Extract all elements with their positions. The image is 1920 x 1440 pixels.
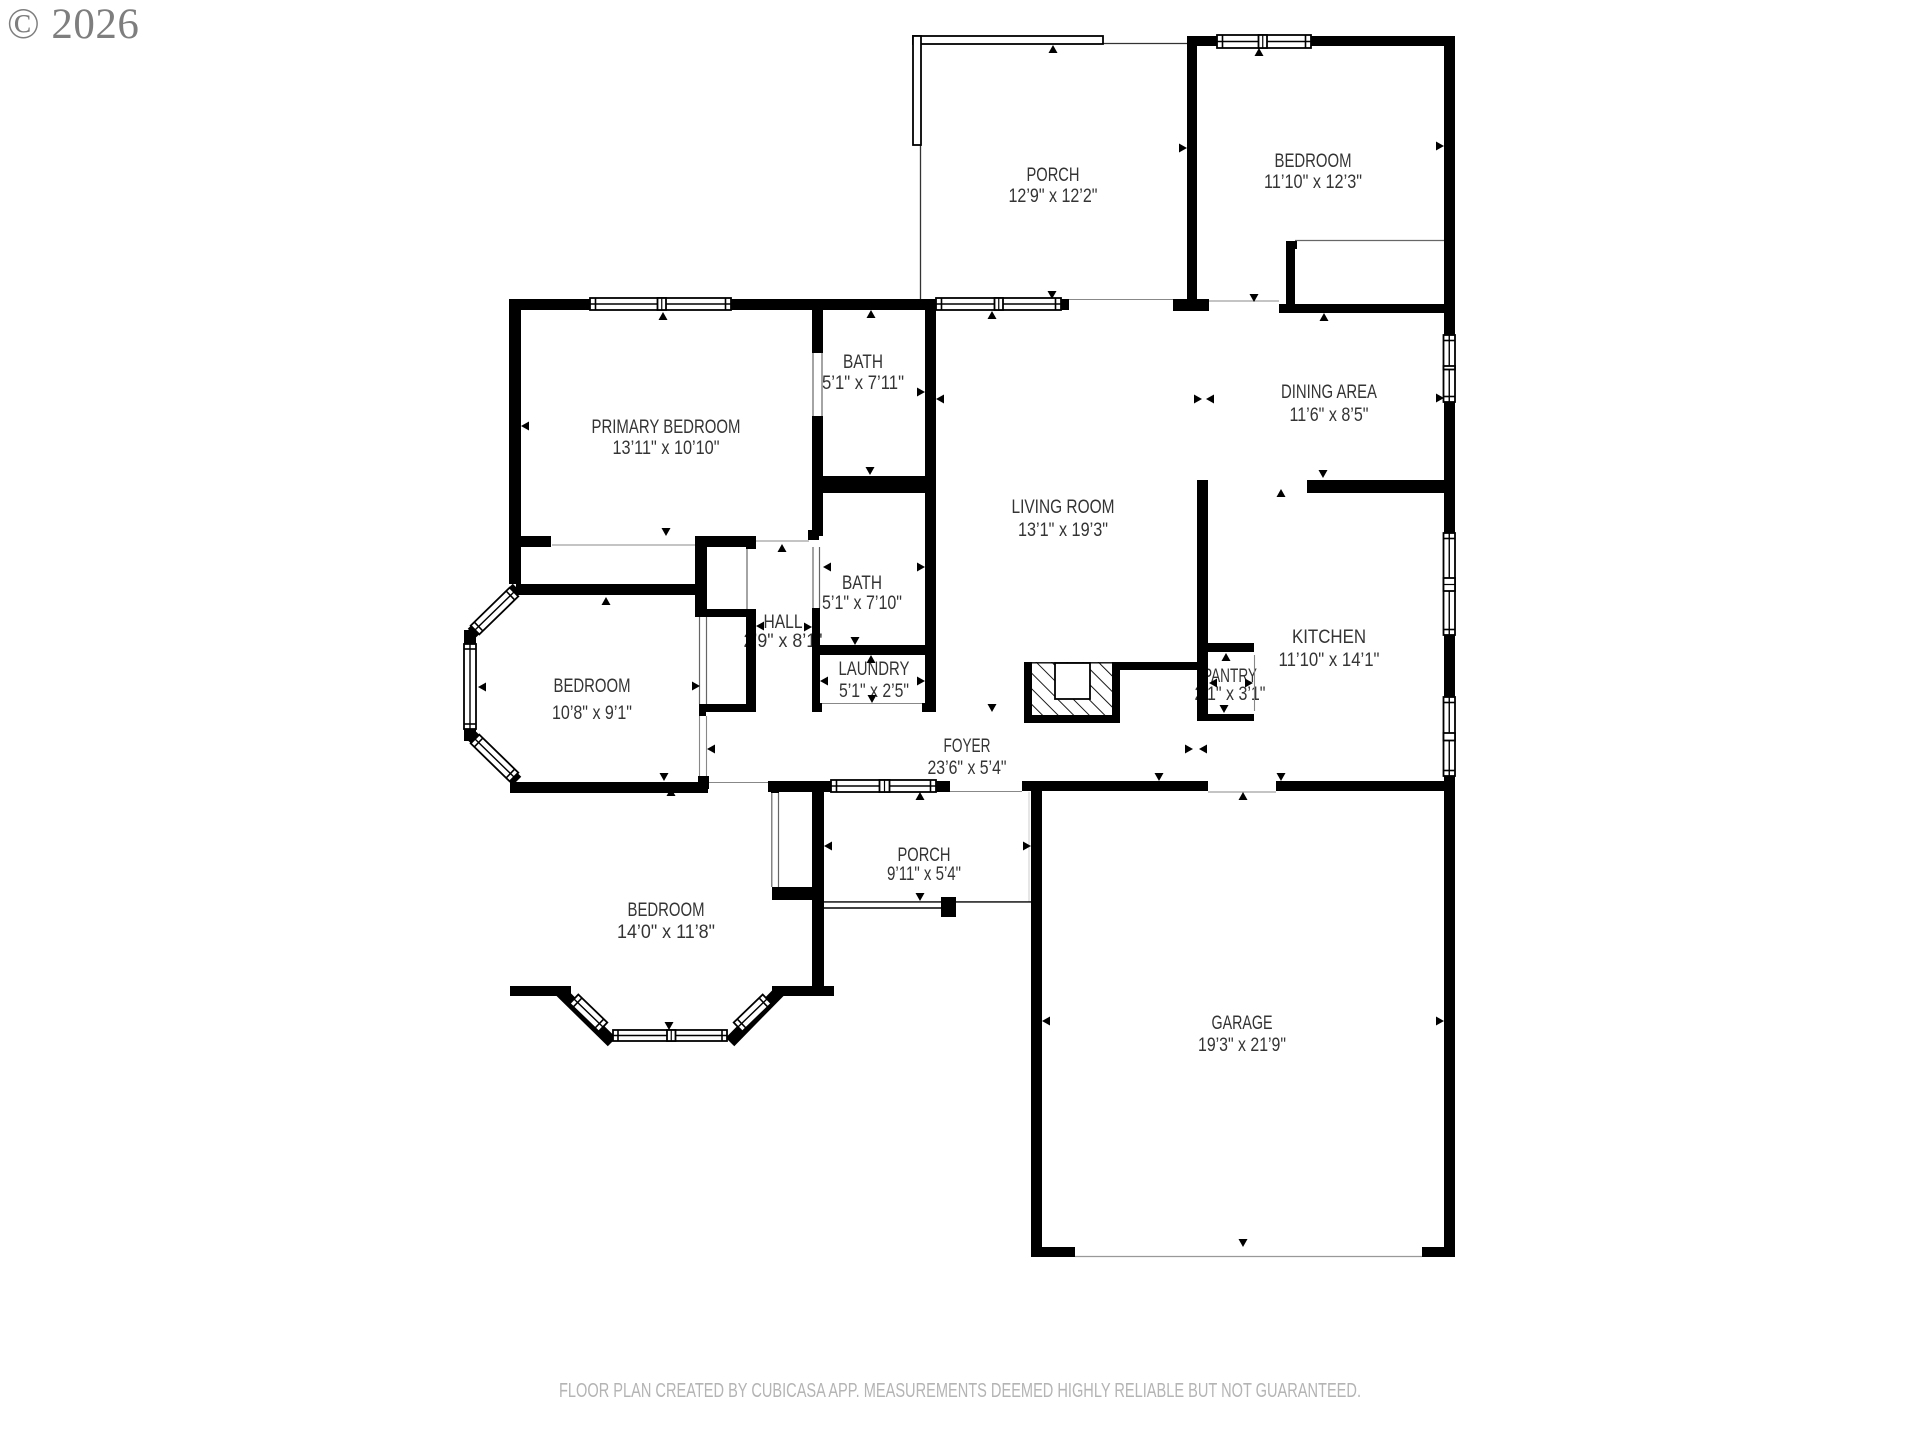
svg-text:BATH: BATH [842, 572, 882, 594]
svg-text:BEDROOM: BEDROOM [554, 675, 631, 697]
svg-text:19’3" x 21’9": 19’3" x 21’9" [1198, 1034, 1286, 1056]
svg-text:11’6" x 8’5": 11’6" x 8’5" [1290, 404, 1369, 426]
svg-text:GARAGE: GARAGE [1212, 1012, 1273, 1034]
svg-text:FOYER: FOYER [944, 735, 991, 757]
svg-text:13’1" x 19’3": 13’1" x 19’3" [1018, 519, 1108, 541]
svg-text:11’10" x 12’3": 11’10" x 12’3" [1264, 171, 1362, 193]
svg-text:5’1" x 7’10": 5’1" x 7’10" [822, 592, 902, 614]
svg-text:10’8" x 9’1": 10’8" x 9’1" [552, 702, 632, 724]
svg-text:© 2026: © 2026 [7, 1, 139, 48]
svg-text:BEDROOM: BEDROOM [628, 899, 705, 921]
svg-text:5’1" x 7’11": 5’1" x 7’11" [822, 372, 904, 394]
svg-text:BATH: BATH [843, 351, 883, 373]
svg-text:PRIMARY BEDROOM: PRIMARY BEDROOM [592, 416, 741, 438]
svg-text:PORCH: PORCH [1027, 164, 1080, 186]
svg-text:23’6" x 5’4": 23’6" x 5’4" [928, 757, 1007, 779]
svg-text:9’11" x 5’4": 9’11" x 5’4" [887, 863, 961, 885]
svg-text:11’10" x 14’1": 11’10" x 14’1" [1279, 649, 1380, 671]
svg-text:FLOOR PLAN CREATED BY CUBICASA: FLOOR PLAN CREATED BY CUBICASA APP. MEAS… [559, 1380, 1361, 1402]
svg-text:LIVING ROOM: LIVING ROOM [1012, 496, 1115, 518]
svg-text:12’9" x 12’2": 12’9" x 12’2" [1009, 185, 1098, 207]
svg-text:14’0" x 11’8": 14’0" x 11’8" [617, 921, 715, 943]
svg-text:DINING AREA: DINING AREA [1281, 381, 1377, 403]
svg-text:BEDROOM: BEDROOM [1275, 150, 1352, 172]
svg-text:KITCHEN: KITCHEN [1292, 626, 1366, 648]
svg-text:13’11" x 10’10": 13’11" x 10’10" [613, 437, 720, 459]
